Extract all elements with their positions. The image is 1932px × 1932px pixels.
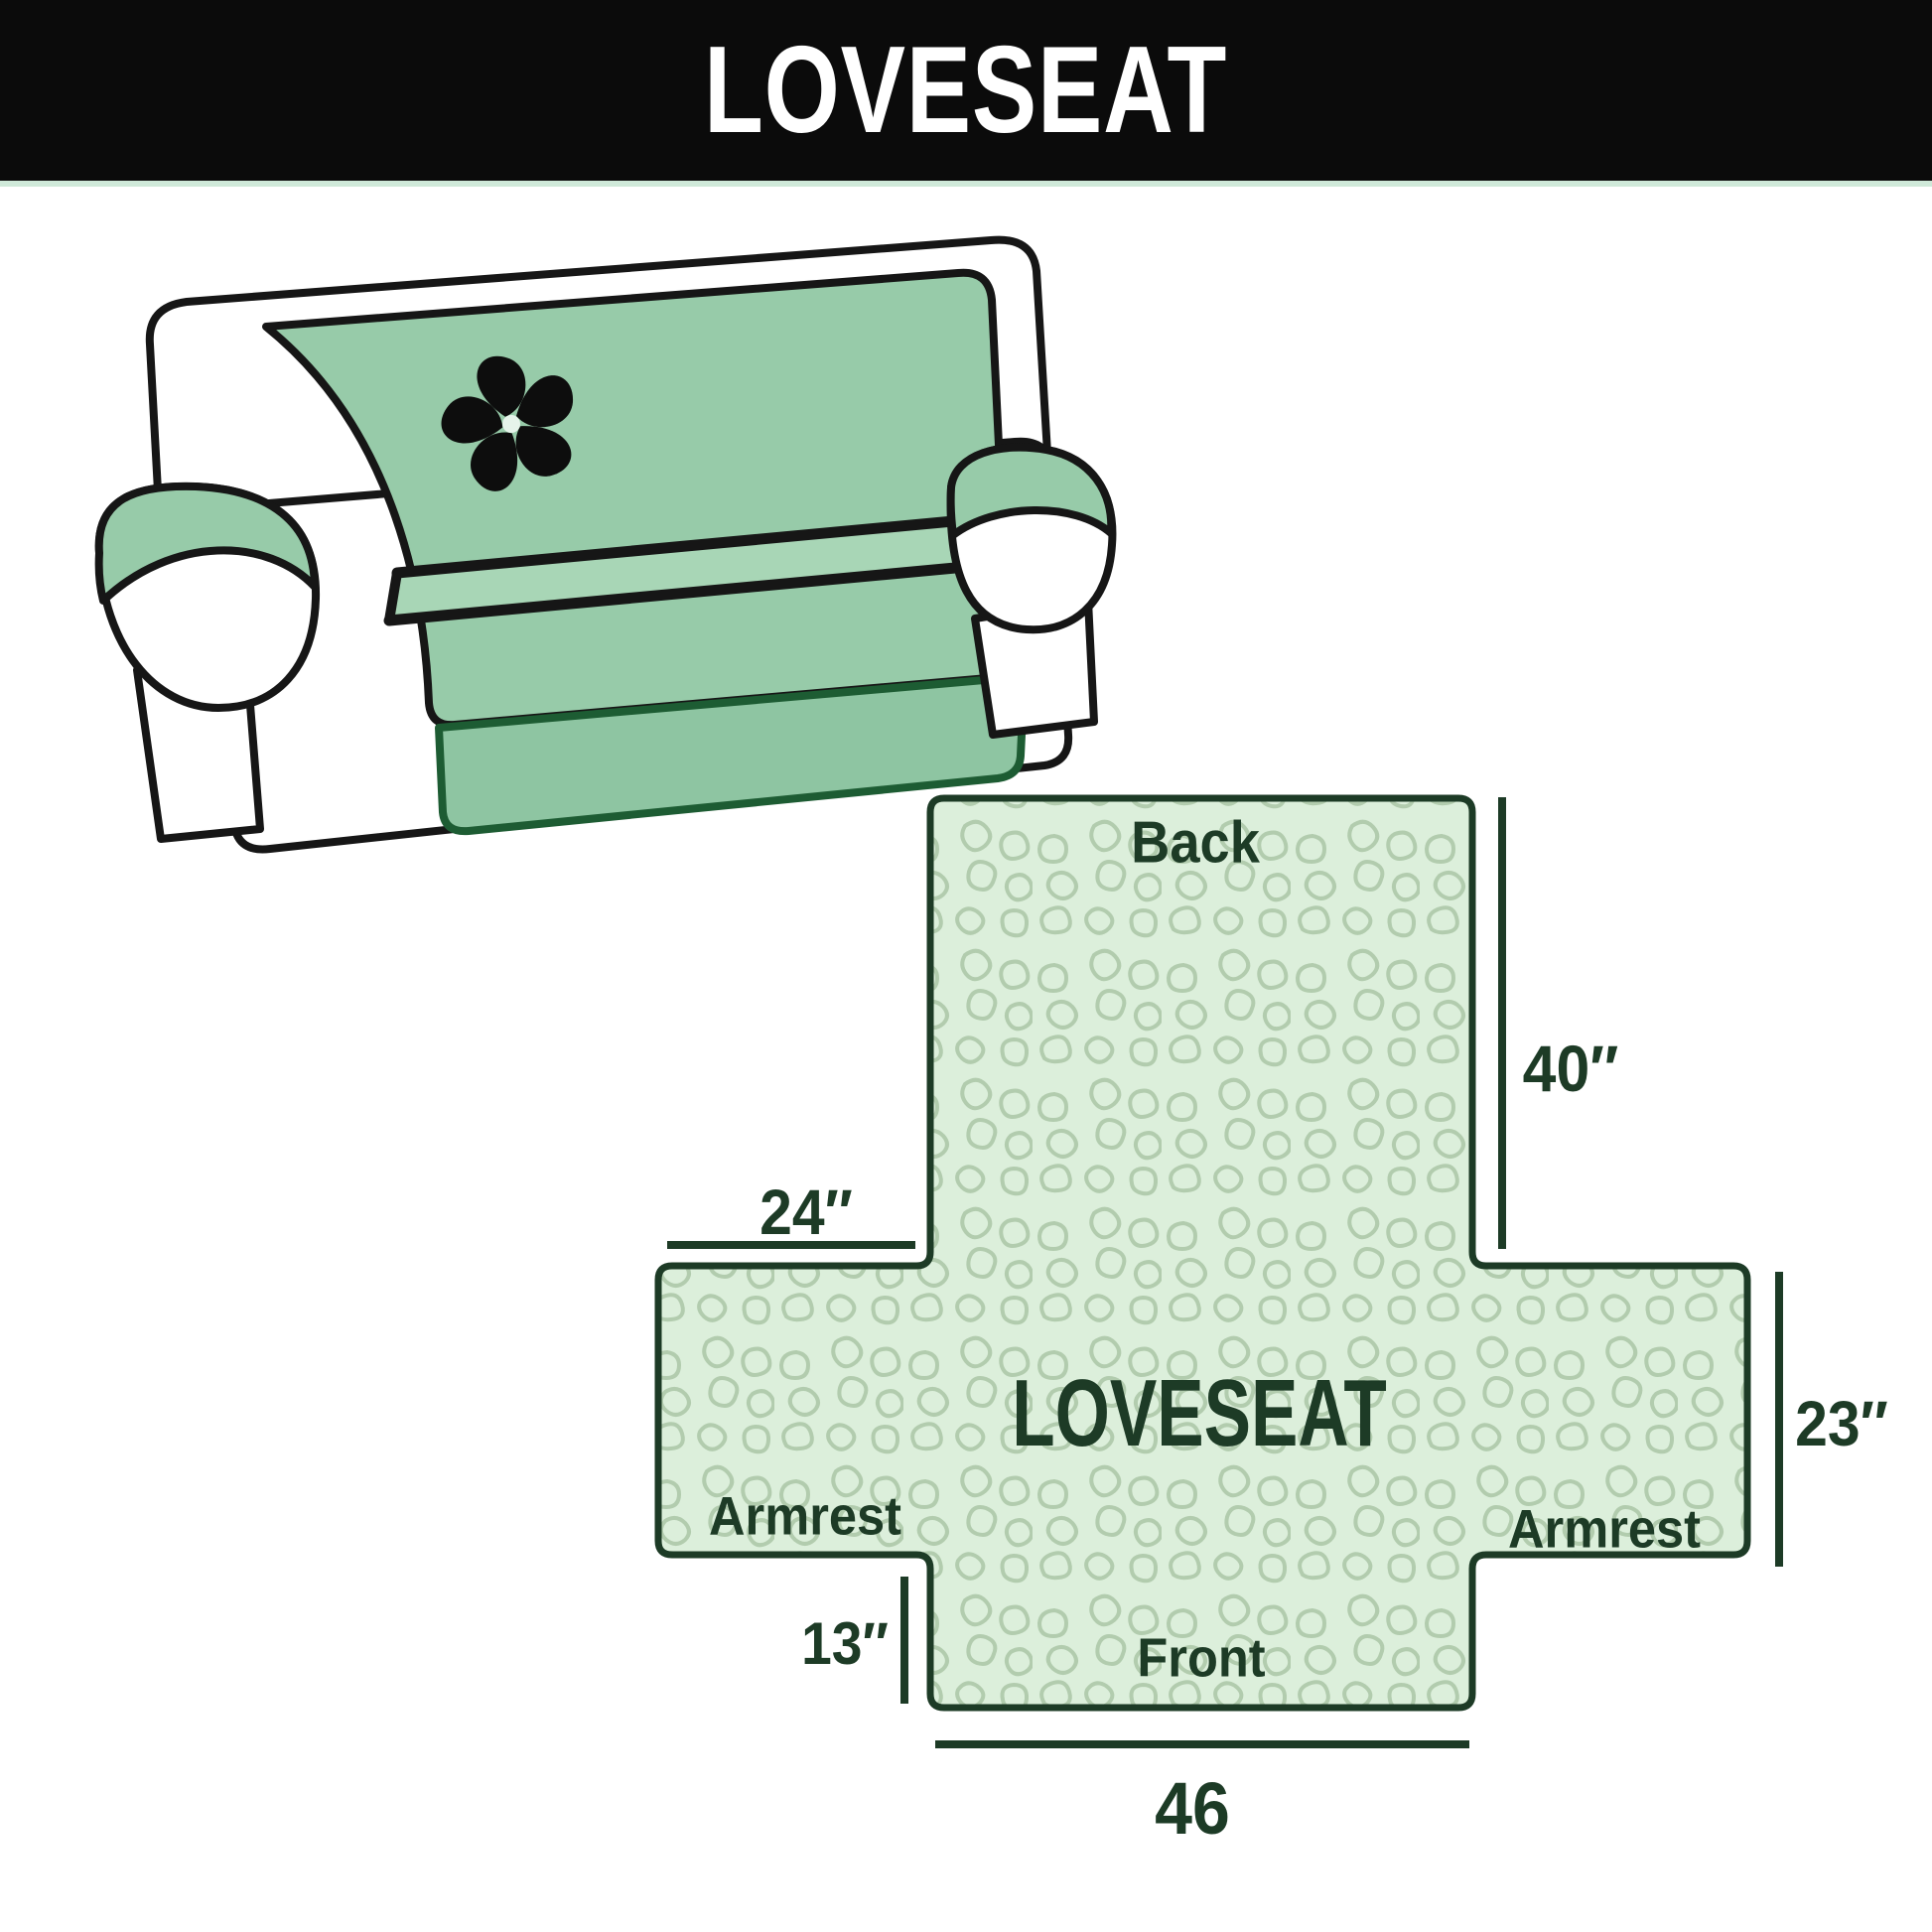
sofa-illustration [99,240,1113,850]
section-label-front: Front [1137,1631,1265,1686]
section-label-center: LOVESEAT [1012,1366,1387,1461]
dim-label-armrest-width: 24″ [759,1180,853,1244]
artwork-canvas [0,0,1932,1932]
dim-label-armrest-height: 23″ [1795,1392,1888,1455]
dim-label-front-height: 13″ [801,1614,889,1674]
section-label-back: Back [1131,814,1260,873]
dim-label-front-width: 46 [1155,1772,1230,1846]
section-label-armrest-right: Armrest [1508,1502,1701,1557]
dim-label-back-height: 40″ [1523,1035,1619,1101]
section-label-armrest-left: Armrest [709,1489,901,1544]
cover-layout-shape [658,798,1747,1708]
loveseat-cover-infographic: { "header": { "title": "LOVESEAT", "bg_c… [0,0,1932,1932]
